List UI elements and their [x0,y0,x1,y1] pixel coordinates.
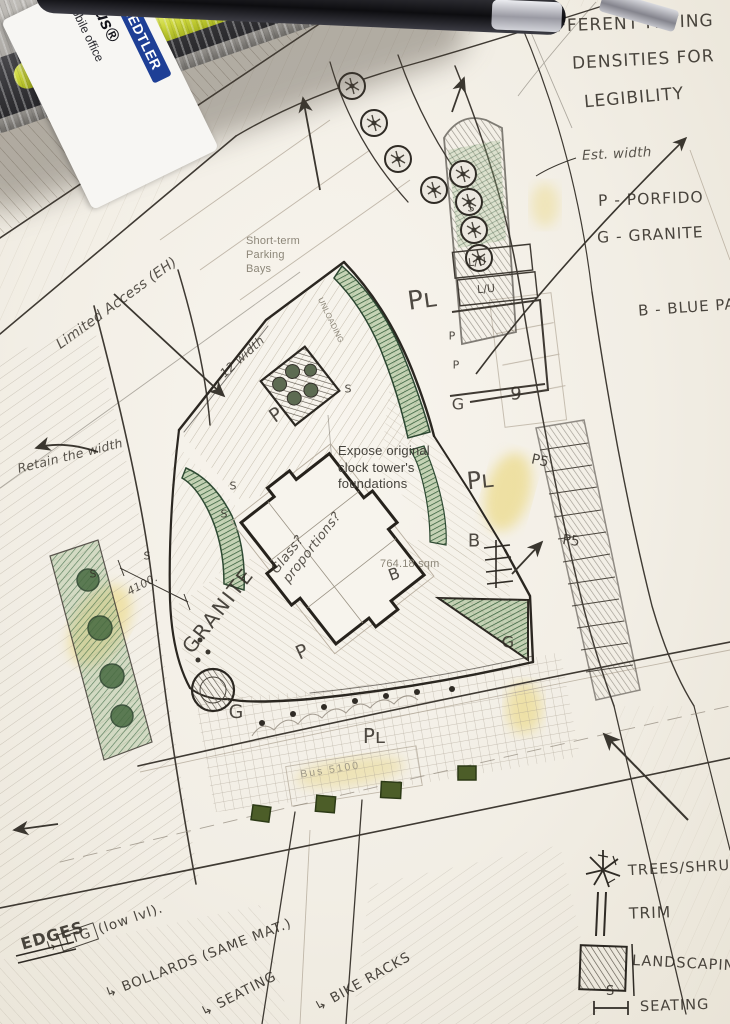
tree-shrub-symbol [586,850,620,887]
seating-symbol [594,1001,628,1015]
trim-symbol [596,892,606,936]
site-plan-sketch-photo: DIFFERENT PAVING DENSITIES FOR LEGIBILIT… [0,0,730,1024]
plan-drawing [0,0,730,1024]
landscaping-symbol [579,945,627,991]
landscaping-tick [632,944,634,996]
legend-symbols [579,850,634,1015]
